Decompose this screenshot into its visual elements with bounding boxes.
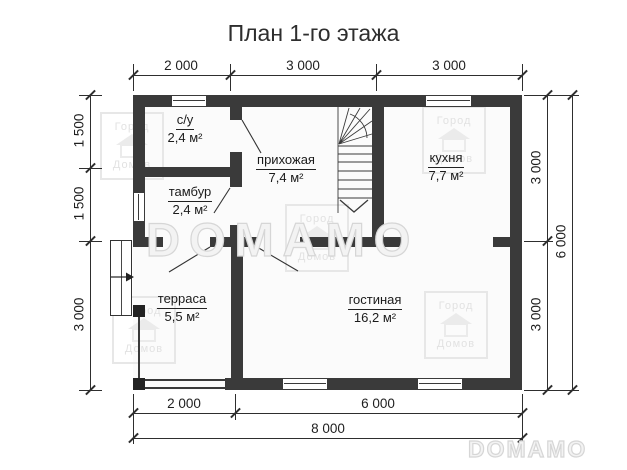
room-area: 5,5 м²	[142, 309, 222, 326]
dim-label-right-2: 3 000	[529, 275, 544, 355]
room-label-prihozhaya: прихожая 7,4 м²	[239, 152, 333, 187]
room-label-kuhnya: кухня 7,7 м²	[406, 150, 486, 185]
staircase	[338, 107, 372, 213]
dim-label-left-1: 1 500	[72, 91, 87, 171]
dim-label-bottom-total: 8 000	[288, 421, 368, 436]
room-area: 16,2 м²	[328, 310, 422, 327]
dim-label-top-3: 3 000	[409, 58, 489, 73]
room-label-tambur: тамбур 2,4 м²	[150, 184, 230, 219]
floor-plan-page: План 1-го этажа Город Домов Город Домов …	[0, 0, 627, 470]
watermark-brand-center: DOMAMO	[146, 212, 419, 267]
room-name: с/у	[176, 112, 195, 130]
dim-label-right-1: 3 000	[529, 128, 544, 208]
stair-direction-arrow	[340, 200, 368, 212]
room-name: терраса	[157, 291, 207, 309]
room-area: 2,4 м²	[150, 202, 230, 219]
room-name: тамбур	[168, 184, 213, 202]
stair-treads	[338, 146, 372, 198]
dim-label-left-2: 1 500	[72, 164, 87, 244]
dim-label-top-1: 2 000	[141, 58, 221, 73]
room-name: прихожая	[256, 152, 316, 170]
door-su	[242, 120, 261, 153]
room-label-terrasa: терраса 5,5 м²	[142, 291, 222, 326]
dim-label-bottom-2: 6 000	[338, 396, 418, 411]
stair-winders	[339, 108, 372, 144]
dim-label-right-total: 6 000	[554, 202, 569, 282]
room-area: 7,7 м²	[406, 168, 486, 185]
dim-label-top-2: 3 000	[263, 58, 343, 73]
entrance-arrow	[111, 240, 134, 316]
room-area: 7,4 м²	[239, 170, 333, 187]
room-label-gostinaya: гостиная 16,2 м²	[328, 292, 422, 327]
dim-label-bottom-1: 2 000	[144, 396, 224, 411]
watermark-brand-corner: DOMAMO	[468, 436, 587, 463]
room-label-su: с/у 2,4 м²	[152, 112, 218, 147]
room-area: 2,4 м²	[152, 130, 218, 147]
entry-arrow-head	[126, 273, 134, 282]
page-title: План 1-го этажа	[0, 20, 627, 47]
room-name: гостиная	[348, 292, 403, 310]
dim-label-left-3: 3 000	[72, 275, 87, 355]
room-name: кухня	[428, 150, 463, 168]
